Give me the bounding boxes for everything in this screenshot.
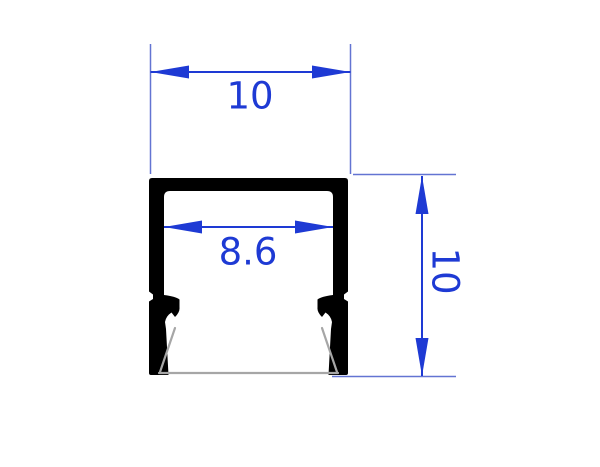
dimension-arrowheads	[151, 66, 429, 377]
arrow-right-icon	[312, 66, 351, 79]
extension-lines	[151, 44, 457, 377]
arrow-up-icon	[416, 176, 429, 214]
outer-width-value: 10	[226, 75, 273, 118]
arrow-down-icon	[416, 338, 429, 376]
technical-drawing: 10 8.6 10	[0, 0, 600, 467]
arrow-inner-right-icon	[295, 221, 333, 234]
base-plate-lines	[159, 328, 338, 373]
arrow-inner-left-icon	[164, 221, 202, 234]
inner-width-value: 8.6	[219, 231, 278, 274]
profile-drawing-svg: 10 8.6 10	[0, 0, 600, 467]
arrow-left-icon	[151, 66, 190, 79]
profile-body-shape	[149, 178, 348, 375]
height-value: 10	[424, 247, 467, 294]
